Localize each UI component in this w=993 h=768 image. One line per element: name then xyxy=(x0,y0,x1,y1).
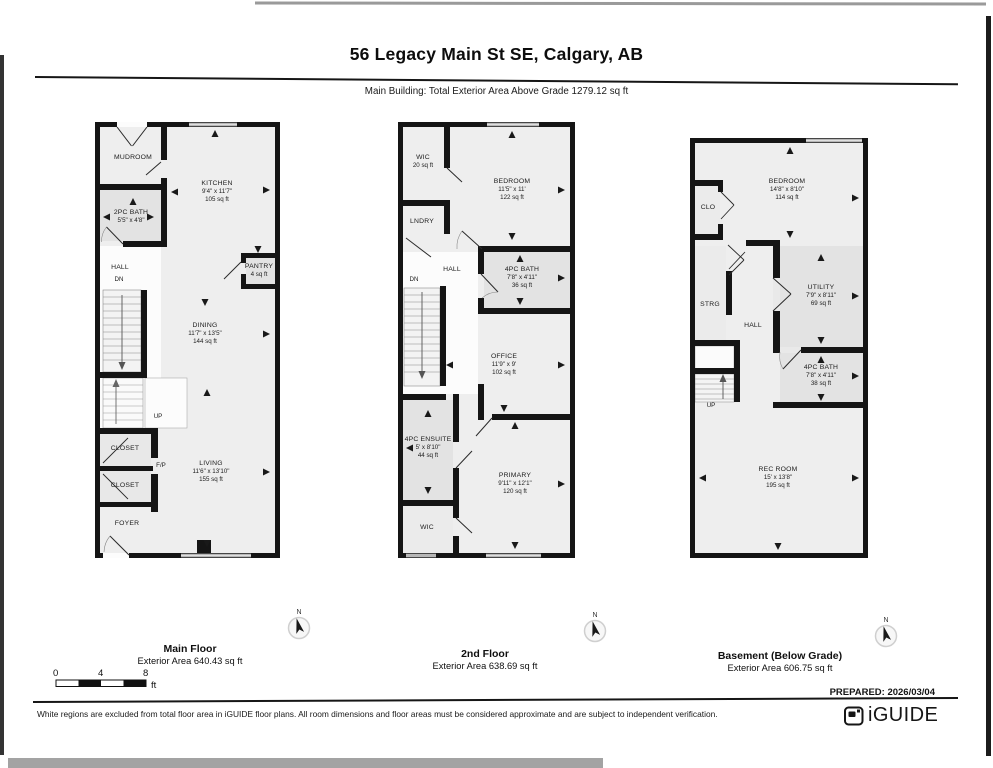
floor-title-main: Main Floor Exterior Area 640.43 sq ft xyxy=(95,643,285,666)
stairs-up-label: UP xyxy=(154,413,163,421)
stairs-up xyxy=(103,378,187,428)
compass-icon: N xyxy=(284,606,314,642)
2nd-floor-drawing xyxy=(398,122,575,558)
stairs-dn-label: DN xyxy=(115,276,124,284)
room-label-clo: CLO xyxy=(701,204,716,212)
footer-rule xyxy=(33,697,958,703)
svg-text:N: N xyxy=(592,612,597,619)
room-label-closet-2: CLOSET xyxy=(111,482,139,490)
room-label-wic: WIC 20 sq ft xyxy=(413,154,433,170)
room-label-wic-2: WIC xyxy=(420,524,434,532)
floorplan-2nd-floor: WIC 20 sq ft BEDROOM 11'5" x 11' 122 sq … xyxy=(398,122,575,558)
room-label-4pc-bath: 4PC BATH 7'8" x 4'11" 36 sq ft xyxy=(505,266,539,290)
room-label-bedroom: BEDROOM 11'5" x 11' 122 sq ft xyxy=(494,178,531,202)
fireplace-label: F/P xyxy=(156,462,166,470)
room-label-hall: HALL xyxy=(744,322,762,330)
svg-text:8: 8 xyxy=(143,668,148,679)
svg-text:N: N xyxy=(883,617,888,624)
iguide-logo-text: iGUIDE xyxy=(868,704,938,727)
floorplan-main-floor: MUDROOM KITCHEN 9'4" x 11'7" 105 sq ft 2… xyxy=(95,122,280,558)
scale-bar: 0 4 8 ft xyxy=(48,666,188,694)
header-rule xyxy=(35,76,958,85)
room-label-4pc-bath: 4PC BATH 7'8" x 4'11" 38 sq ft xyxy=(804,364,838,388)
floorplan-document-page: 56 Legacy Main St SE, Calgary, AB Main B… xyxy=(0,0,993,768)
page-title: 56 Legacy Main St SE, Calgary, AB xyxy=(0,44,993,65)
scan-artifact-left xyxy=(0,55,4,755)
stairs-down xyxy=(404,288,440,386)
room-label-foyer: FOYER xyxy=(115,520,139,528)
scan-artifact-bottom xyxy=(8,758,603,768)
disclaimer-text: White regions are excluded from total fl… xyxy=(37,709,797,719)
room-label-office: OFFICE 11'9" x 9' 102 sq ft xyxy=(491,353,517,377)
floor-title-basement: Basement (Below Grade) Exterior Area 606… xyxy=(685,650,875,673)
room-label-utility: UTILITY 7'9" x 8'11" 69 sq ft xyxy=(806,284,836,308)
room-label-rec-room: REC ROOM 15' x 13'8" 195 sq ft xyxy=(759,466,798,490)
room-label-living: LIVING 11'6" x 13'10" 155 sq ft xyxy=(193,460,230,484)
room-label-4pc-ensuite: 4PC ENSUITE 5' x 8'10" 44 sq ft xyxy=(405,436,452,460)
scan-artifact-right xyxy=(986,16,991,756)
room-label-lndry: LNDRY xyxy=(410,218,434,226)
svg-text:0: 0 xyxy=(53,668,58,679)
floorplan-basement: BEDROOM 14'8" x 8'10" 114 sq ft CLO STRG… xyxy=(690,138,868,558)
svg-text:ft: ft xyxy=(151,680,157,691)
compass-icon: N xyxy=(580,609,610,645)
room-label-closet-1: CLOSET xyxy=(111,445,139,453)
iguide-logo-icon xyxy=(843,705,865,727)
page-subtitle: Main Building: Total Exterior Area Above… xyxy=(0,86,993,97)
floor-title-2nd: 2nd Floor Exterior Area 638.69 sq ft xyxy=(390,648,580,671)
room-label-mudroom: MUDROOM xyxy=(114,154,152,162)
stairs-down xyxy=(103,290,141,372)
svg-text:N: N xyxy=(296,609,301,616)
room-label-strg: STRG xyxy=(700,301,720,309)
room-label-kitchen: KITCHEN 9'4" x 11'7" 105 sq ft xyxy=(201,180,232,204)
room-label-primary: PRIMARY 9'11" x 12'1" 120 sq ft xyxy=(498,472,531,496)
window xyxy=(806,139,862,143)
stairs-up-label: UP xyxy=(707,402,716,410)
room-label-hall: HALL xyxy=(111,264,129,272)
scan-artifact-top xyxy=(255,1,986,5)
room-label-dining: DINING 11'7" x 13'5" 144 sq ft xyxy=(188,322,221,346)
compass-icon: N xyxy=(871,614,901,650)
svg-text:4: 4 xyxy=(98,668,103,679)
room-label-pantry: PANTRY 4 sq ft xyxy=(245,263,273,279)
room-label-hall: HALL xyxy=(443,266,461,274)
iguide-logo: iGUIDE xyxy=(843,704,938,727)
stairs-dn-label: DN xyxy=(410,276,419,284)
room-label-bedroom: BEDROOM 14'8" x 8'10" 114 sq ft xyxy=(769,178,806,202)
room-label-2pc-bath: 2PC BATH 5'5" x 4'8" xyxy=(114,209,148,225)
